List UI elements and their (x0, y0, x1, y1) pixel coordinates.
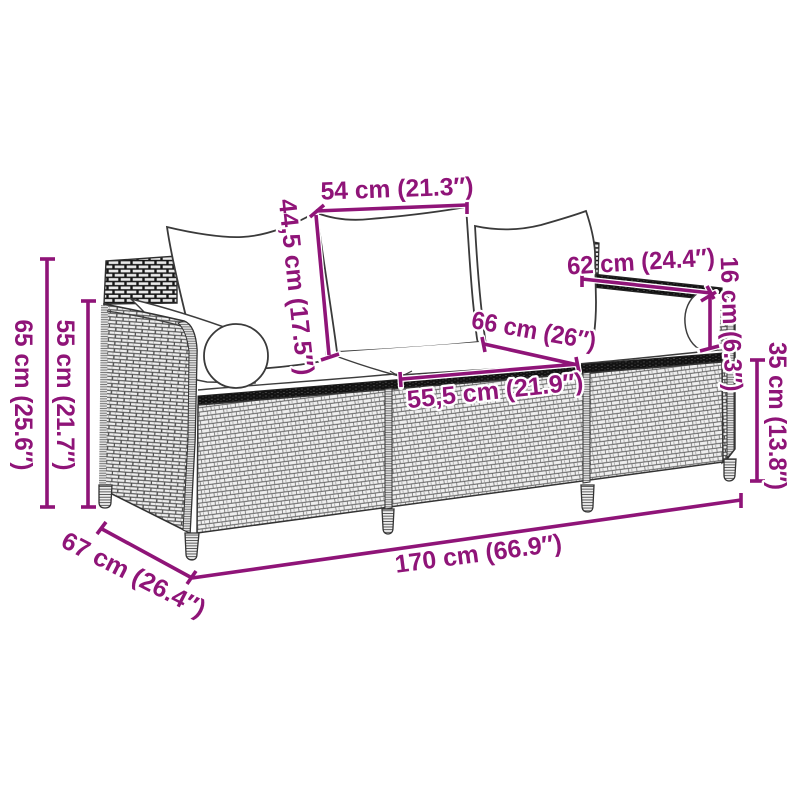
svg-text:65 cm (25.6″): 65 cm (25.6″) (9, 320, 37, 471)
svg-text:55 cm (21.7″): 55 cm (21.7″) (51, 320, 79, 471)
svg-text:54 cm (21.3″): 54 cm (21.3″) (320, 172, 474, 205)
svg-text:16 cm (6.3″): 16 cm (6.3″) (715, 256, 748, 392)
svg-text:35 cm (13.8″): 35 cm (13.8″) (763, 342, 791, 490)
